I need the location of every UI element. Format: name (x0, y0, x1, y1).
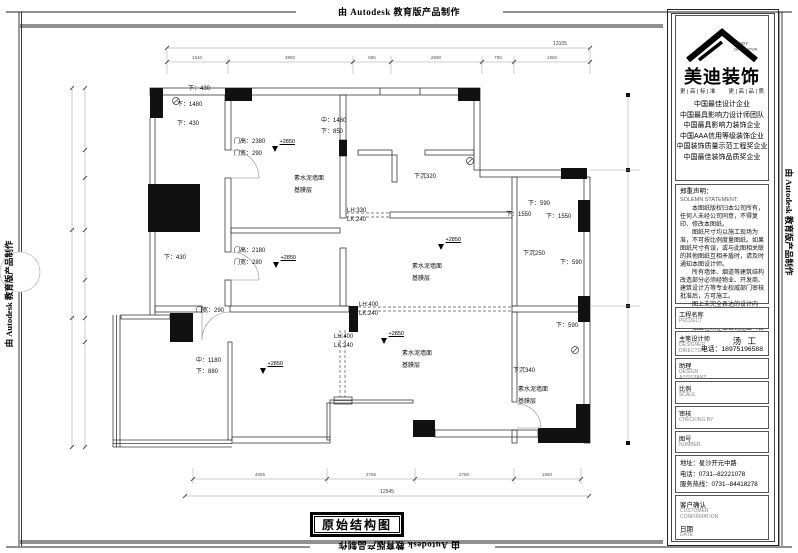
plan-annotation: 门宽：280 (234, 260, 262, 266)
drawing-title: 原始结构图 (314, 516, 400, 533)
dimension-label: 2755 (366, 472, 376, 477)
plan-annotation: 下：590 (528, 201, 550, 207)
autodesk-banner-right: 由 Autodesk 教育版产品制作 (783, 147, 795, 297)
plan-annotation: 下：430 (188, 86, 210, 92)
company-address: 地址：星沙开元中路 (680, 459, 764, 470)
elevation-value: +2850 (280, 139, 295, 145)
plan-annotation: 下沉340 (513, 368, 535, 374)
plan-annotation: 下：880 (196, 369, 218, 375)
dimension-label: 1960 (542, 472, 552, 477)
plan-annotation: 下：850 (321, 129, 343, 135)
field-label-en: CHECKING BY (679, 418, 765, 424)
plan-annotation: LK:240 (347, 217, 366, 223)
plan-annotation: 下沉320 (414, 174, 436, 180)
statement-paragraph: 所有墙体、烟道等建筑结构改造部分必须经物业、开发商、建筑设计方等专业权威部门审核… (680, 269, 764, 301)
door-swings (202, 150, 541, 428)
plan-annotation: LK:240 (334, 343, 353, 349)
elevation-value: +2850 (268, 361, 283, 367)
elevation-triangle-icon (272, 146, 278, 152)
accolade-list: 中国最佳设计企业中国最具影响力设计师团队中国最具影响力装饰企业中国AAA信用等级… (676, 100, 768, 163)
dimension-label: 2780 (459, 472, 469, 477)
dimension-label: 1950 (547, 55, 557, 60)
plan-annotation: 素水泥墙面 (294, 176, 324, 182)
accolade-line: 中国AAA信用等级装饰企业 (676, 132, 768, 143)
dimension-label: 985 (368, 55, 376, 60)
field-extra: 电话：18975196588 (701, 343, 763, 353)
company-logo-box: MEIDY DECORATION 美迪装饰 更 | 高 | 标 | 准 更 | … (675, 15, 769, 181)
dimension-label: 780 (494, 55, 502, 60)
plan-annotation: 门宽：290 (196, 308, 224, 314)
plan-annotation: 下：590 (560, 260, 582, 266)
statement-paragraph: 本图纸版权归本公司所有，任何人未经公司同意，不得复印、修改本图纸。 (680, 205, 764, 229)
plan-annotation: 基膜层 (518, 399, 536, 405)
statement-box: 郑重声明： SOLEMN STATEMENT: 本图纸版权归本公司所有，任何人未… (675, 184, 769, 304)
elevation-value: +2850 (281, 255, 296, 261)
field-label-en: PROJECT (679, 319, 765, 325)
roof-logo-icon: MEIDY DECORATION (676, 16, 768, 62)
drawing-title-box: 原始结构图 (310, 512, 404, 537)
dimension-total: 13105 (553, 41, 567, 47)
plan-annotation: 门高：2380 (234, 139, 265, 145)
svg-text:DECORATION: DECORATION (734, 48, 758, 52)
plan-annotation: LK:240 (359, 311, 378, 317)
plan-annotation: LH:400 (359, 302, 378, 308)
plan-annotation: 中：1480 (321, 118, 346, 124)
plan-annotation: 下：430 (177, 121, 199, 127)
cad-sheet: 由 Autodesk 教育版产品制作 由 Autodesk 教育版产品制作 由 … (0, 0, 798, 553)
field-box-design: 助理DESIGNASSISTANT (675, 358, 769, 379)
accolade-line: 中国装饰质量示范工程奖企业 (676, 142, 768, 153)
field-box-checking-by: 审核CHECKING BY (675, 406, 769, 429)
brand-name: 美迪装饰 (676, 63, 768, 89)
dimension-label: 1540 (192, 55, 202, 60)
field-box-project: 工程名称PROJECT (675, 307, 769, 329)
autodesk-banner-left: 由 Autodesk 教育版产品制作 (3, 219, 15, 369)
svg-text:MEIDY: MEIDY (734, 41, 749, 46)
plan-annotation: 素水泥墙面 (412, 264, 442, 270)
accolade-line: 中国最具影响力装饰企业 (676, 121, 768, 132)
plan-annotation: 下：430 (164, 255, 186, 261)
statement-title-en: SOLEMN STATEMENT: (680, 196, 764, 204)
plan-annotation: 基膜层 (294, 188, 312, 194)
plan-annotation: 下沉250 (523, 251, 545, 257)
field-box-designer: 主笔设计师DESIGNERDIRECTOR汤 工电话：18975196588 (675, 331, 769, 356)
elevation-value: +2850 (446, 237, 461, 243)
plan-annotation: 门宽：290 (234, 151, 262, 157)
plan-annotation: 下：1550 (506, 212, 531, 218)
contact-box: 地址：星沙开元中路 电话：0731--82221078 服务热线：0731--8… (675, 455, 769, 493)
dimension-total: 12545 (380, 489, 394, 495)
field-label-en: NUMBER (679, 443, 765, 449)
plan-annotation: 基膜层 (412, 276, 430, 282)
plan-annotation: 门高：2180 (234, 248, 265, 254)
plan-annotation: 基膜层 (402, 363, 420, 369)
dimension-label: 2590 (431, 55, 441, 60)
elevation-triangle-icon (273, 262, 279, 268)
plan-annotation: 下：590 (556, 323, 578, 329)
accolade-line: 中国最佳装饰品质奖企业 (676, 153, 768, 164)
confirmation-box: 客户确认 CUSTOMER CONFIRMATION 日期 DATE (675, 495, 769, 540)
accolade-line: 中国最具影响力设计师团队 (676, 111, 768, 122)
plan-annotation: LH:330 (347, 208, 366, 214)
plan-annotation: 下：1480 (177, 102, 202, 108)
statement-title-cn: 郑重声明： (680, 188, 764, 196)
field-label-en: SCALE (679, 393, 765, 399)
elevation-triangle-icon (381, 338, 387, 344)
statement-paragraph: 图纸尺寸均以施工现场为准，不可按比例度量图纸。如果图纸尺寸有误，或与此图相关联的… (680, 229, 764, 269)
plan-annotation: LH:400 (334, 334, 353, 340)
dimension-label: 3850 (285, 55, 295, 60)
walls (113, 88, 590, 447)
accolade-line: 中国最佳设计企业 (676, 100, 768, 111)
elevation-value: +2850 (389, 331, 404, 337)
plan-annotation: 中：1180 (196, 358, 221, 364)
service-hotline: 服务热线：0731--84418278 (680, 480, 764, 491)
plan-annotation: 素水泥墙面 (518, 387, 548, 393)
elevation-triangle-icon (260, 368, 266, 374)
company-phone: 电话：0731--82221078 (680, 470, 764, 481)
plan-annotation: 下：1550 (546, 214, 571, 220)
brand-slogan: 更 | 高 | 标 | 准 更 | 高 | 品 | 质 (680, 87, 764, 95)
plan-annotation: 素水泥墙面 (402, 351, 432, 357)
field-box-number: 图号NUMBER (675, 431, 769, 453)
field-box-scale: 比例SCALE (675, 381, 769, 404)
elevation-triangle-icon (438, 244, 444, 250)
dimension-label: 4055 (255, 472, 265, 477)
